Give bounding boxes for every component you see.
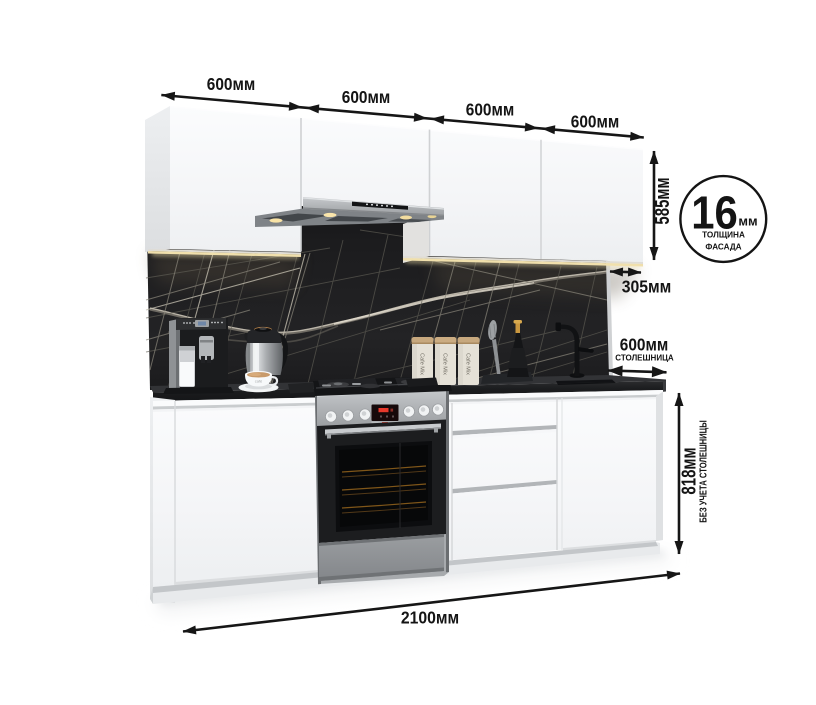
svg-text:585мм: 585мм (651, 177, 674, 224)
svg-text:Cafe Mix: Cafe Mix (442, 353, 448, 375)
svg-text:мм: мм (738, 214, 757, 229)
svg-text:600мм: 600мм (571, 113, 619, 132)
svg-text:ФАСАДА: ФАСАДА (705, 243, 741, 252)
svg-text:600мм: 600мм (207, 75, 255, 94)
svg-text:СТОЛЕШНИЦА: СТОЛЕШНИЦА (615, 354, 674, 363)
svg-text:600мм: 600мм (466, 101, 514, 120)
svg-text:305мм: 305мм (622, 277, 672, 297)
svg-text:2100мм: 2100мм (401, 608, 459, 628)
svg-text:БЕЗ УЧЕТА СТОЛЕШНИЦЫ: БЕЗ УЧЕТА СТОЛЕШНИЦЫ (697, 420, 708, 523)
svg-text:café: café (255, 379, 263, 384)
svg-text:600мм: 600мм (620, 336, 668, 355)
svg-text:Cafe Mix: Cafe Mix (465, 353, 471, 375)
svg-text:Cafe Mix: Cafe Mix (419, 353, 425, 375)
svg-text:600мм: 600мм (342, 88, 390, 107)
svg-text:ТОЛЩИНА: ТОЛЩИНА (702, 231, 745, 240)
